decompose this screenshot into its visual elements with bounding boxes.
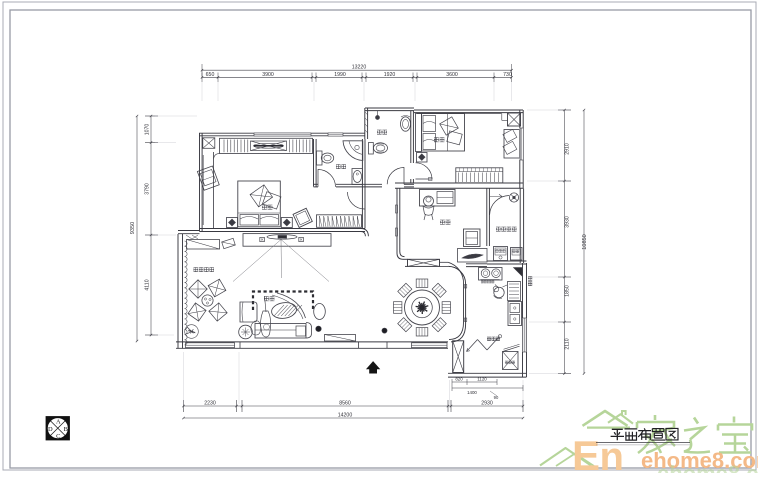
svg-text:ehome8.com: ehome8.com: [657, 461, 758, 473]
svg-text:1990: 1990: [334, 72, 346, 78]
svg-text:n: n: [600, 435, 624, 473]
svg-text:2910: 2910: [565, 143, 571, 155]
svg-text:1850: 1850: [565, 285, 571, 297]
svg-text:2230: 2230: [204, 400, 216, 406]
svg-text:E: E: [572, 432, 600, 473]
svg-text:4110: 4110: [145, 279, 151, 290]
svg-text:650: 650: [206, 72, 215, 78]
svg-text:9350: 9350: [130, 222, 136, 234]
svg-text:3790: 3790: [145, 183, 151, 195]
svg-text:2930: 2930: [481, 400, 493, 406]
svg-text:B: B: [64, 426, 68, 433]
svg-text:2110: 2110: [565, 338, 571, 349]
svg-text:3930: 3930: [565, 216, 571, 228]
svg-text:D: D: [48, 426, 53, 433]
svg-text:730: 730: [503, 72, 512, 78]
svg-text:1070: 1070: [145, 124, 151, 136]
svg-text:1400: 1400: [467, 390, 477, 395]
svg-text:1920: 1920: [384, 72, 396, 78]
svg-text:8560: 8560: [339, 400, 351, 406]
svg-text:10850: 10850: [582, 234, 588, 250]
svg-text:A: A: [56, 419, 61, 426]
svg-text:C: C: [56, 433, 60, 440]
svg-text:90: 90: [494, 395, 499, 400]
svg-text:13220: 13220: [352, 65, 367, 71]
svg-text:3600: 3600: [446, 72, 458, 78]
svg-text:3900: 3900: [262, 72, 274, 78]
svg-text:14200: 14200: [338, 412, 353, 418]
